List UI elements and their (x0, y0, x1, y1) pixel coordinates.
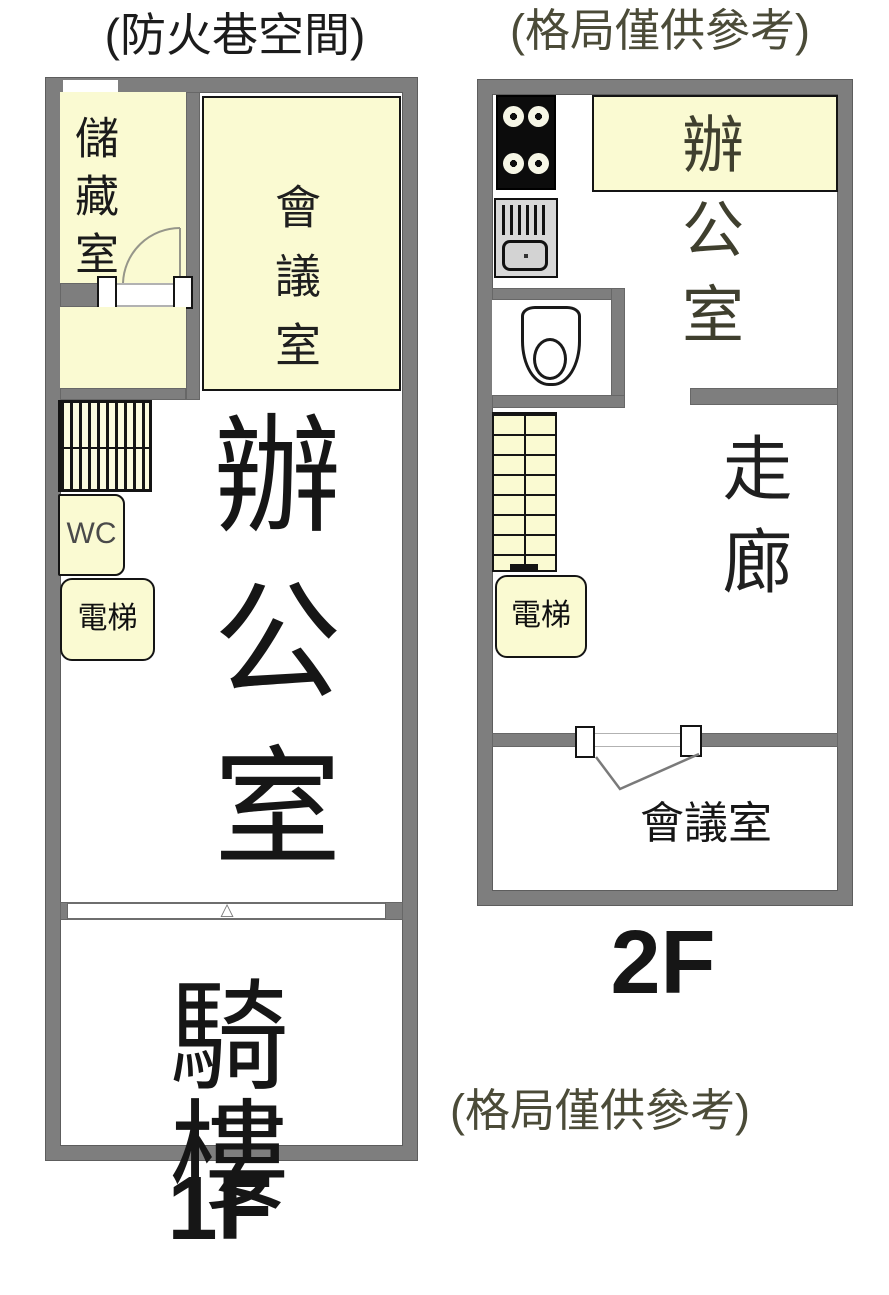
wall-segment (492, 733, 583, 747)
wall-segment (60, 902, 68, 920)
wall-segment (492, 395, 625, 408)
wall-segment (690, 388, 838, 405)
floor2-plan: 辦公室 電梯 走廊 會議室 (478, 80, 852, 905)
door-swing-icon (590, 750, 710, 795)
floor2-label: 2F (553, 918, 773, 1008)
elevator-2f-label: 電梯 (495, 601, 587, 631)
bottom-note: (格局僅供參考) (425, 1088, 775, 1133)
sliding-door-1f (117, 283, 173, 307)
floor2-title: (格局僅供參考) (490, 8, 830, 53)
wall-segment (60, 388, 186, 400)
elevator-1f-label: 電梯 (60, 604, 155, 634)
floorplan-canvas: (防火巷空間) 儲藏室 會議室 WC (0, 0, 889, 1295)
window-marker-icon: △ (215, 901, 239, 918)
floor1-plan: 儲藏室 會議室 WC 電梯 辦公室 (46, 78, 417, 1160)
wall-segment (492, 288, 625, 300)
floor1-label: 1F (110, 1164, 330, 1254)
stove-icon (496, 95, 556, 190)
stairs-icon (492, 412, 557, 572)
wall-segment (700, 733, 838, 747)
sink-icon (494, 198, 558, 278)
corridor-label: 走廊 (717, 432, 787, 618)
meeting-room-2f-label: 會議室 (631, 802, 781, 846)
wc-label: WC (58, 519, 125, 549)
wall-segment (385, 902, 403, 920)
door-opening-2f (595, 733, 680, 747)
storage-room-label: 儲藏室 (70, 115, 114, 289)
wall-segment (186, 92, 200, 400)
storage-annex (60, 307, 186, 388)
office-2f-label: 辦公室 (675, 112, 737, 367)
door-post-icon (173, 276, 193, 309)
wall-segment (611, 288, 625, 408)
floor1-title: (防火巷空間) (85, 12, 385, 58)
stairs-icon (58, 400, 152, 492)
toilet-icon (521, 306, 581, 386)
door-post-icon (97, 276, 117, 309)
meeting-room-1f-label: 會議室 (272, 183, 318, 390)
office-1f-label: 辦公室 (201, 408, 329, 906)
